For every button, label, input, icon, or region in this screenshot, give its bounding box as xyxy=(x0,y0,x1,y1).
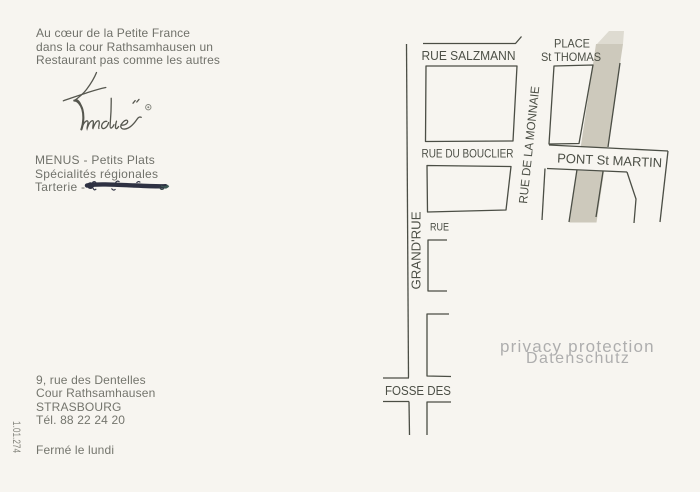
svg-text:RUE DE LA MONNAIE: RUE DE LA MONNAIE xyxy=(516,85,542,204)
svg-text:FOSSE DES: FOSSE DES xyxy=(385,384,451,398)
svg-text:PLACE: PLACE xyxy=(554,37,590,51)
svg-text:RUE DU BOUCLIER: RUE DU BOUCLIER xyxy=(422,147,514,161)
svg-text:RUE SALZMANN: RUE SALZMANN xyxy=(422,48,516,63)
svg-text:RUE: RUE xyxy=(430,222,449,234)
svg-text:GRAND'RUE: GRAND'RUE xyxy=(410,212,424,290)
svg-text:St THOMAS: St THOMAS xyxy=(541,50,601,64)
